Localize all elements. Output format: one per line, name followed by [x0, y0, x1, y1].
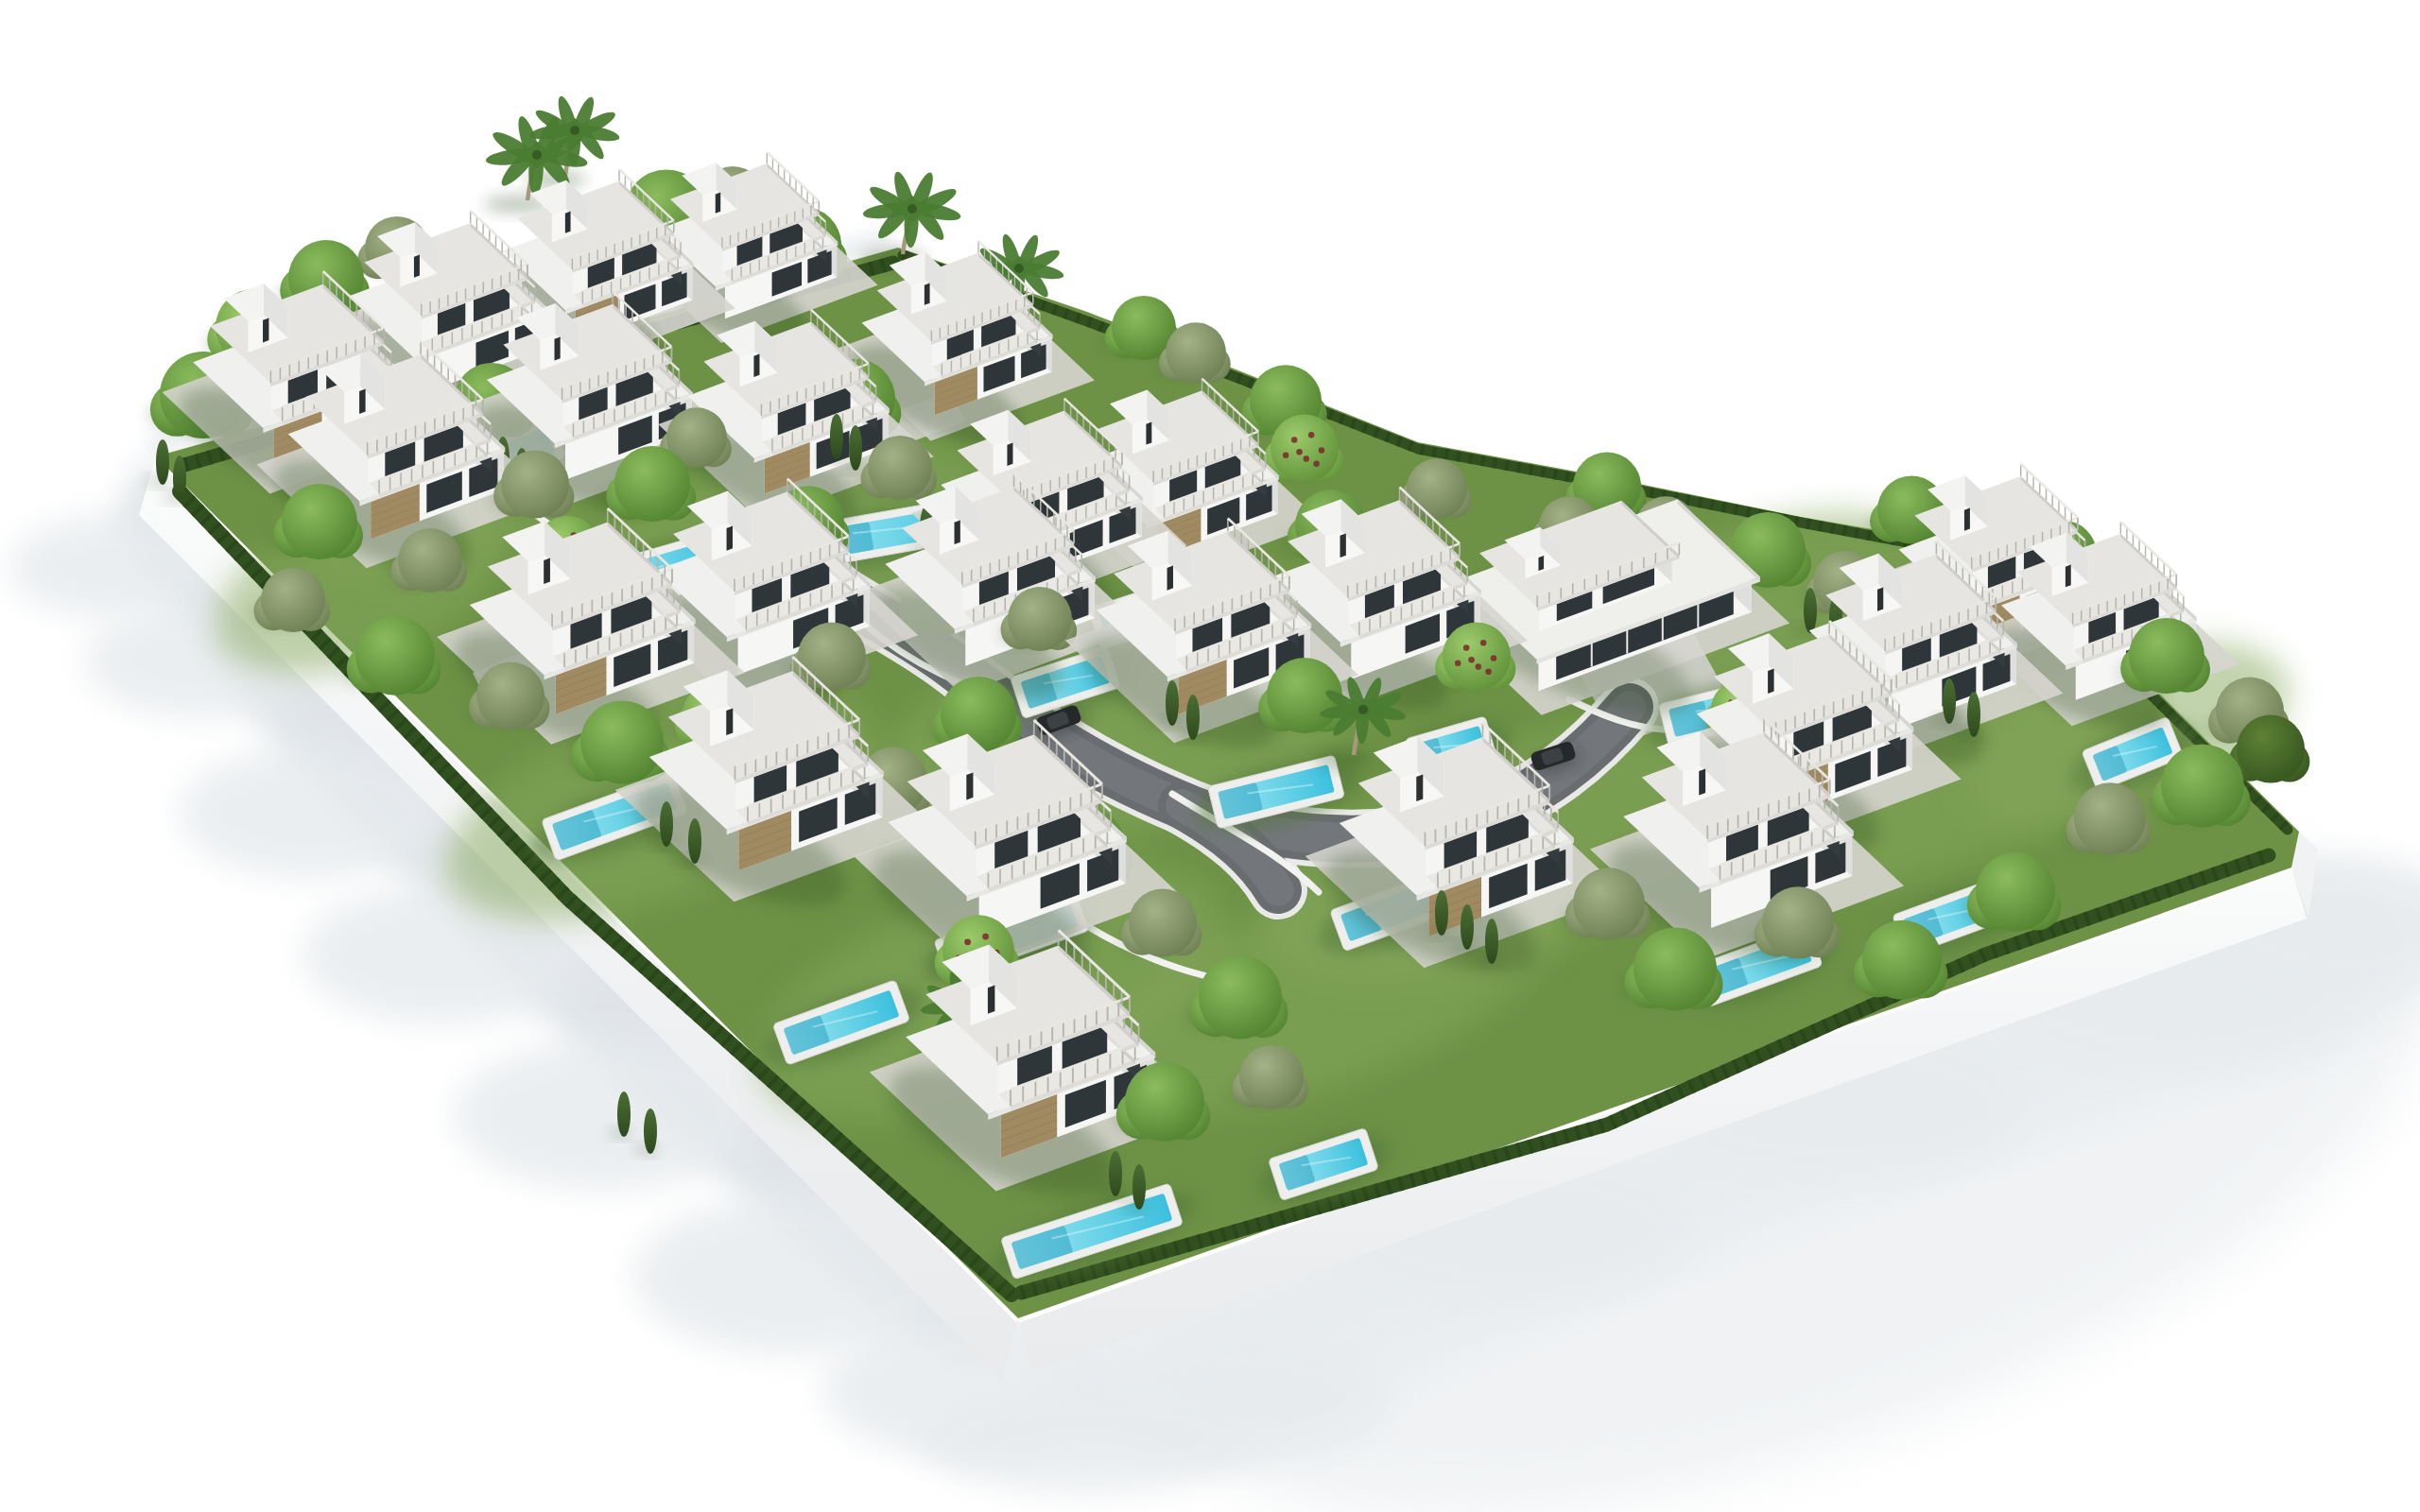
render-canvas [0, 0, 2420, 1512]
tree-cast-shadow [917, 1380, 1257, 1493]
aerial-render-villa-development [0, 0, 2420, 1512]
palm-tree [860, 169, 962, 266]
